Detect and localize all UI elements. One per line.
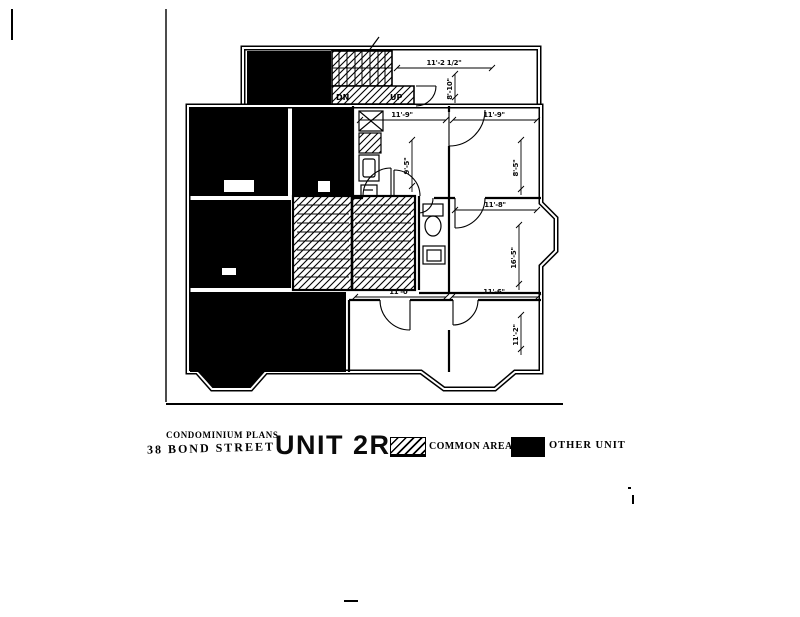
other-unit-swatch (511, 437, 545, 457)
dimension-label: 11'-6" (483, 288, 505, 296)
scanned-plan-page: DN UP (0, 0, 800, 617)
scan-mark (11, 9, 13, 40)
dimension-label: 11'-2" (512, 324, 520, 346)
floor-plan-drawing: DN UP (0, 0, 800, 617)
dimension-label: 11'-8" (484, 201, 506, 209)
unit-title: UNIT 2R (275, 430, 391, 461)
stair-down-label: DN (336, 93, 349, 102)
scan-mark (628, 487, 631, 489)
dimension-label: 8'-10" (446, 78, 454, 100)
common-area-stairwell (293, 196, 415, 290)
dimension-label: 8'-5" (512, 160, 520, 177)
scan-mark (632, 495, 634, 504)
dimension-label: 11'-2 1/2" (426, 59, 461, 67)
stair-up-label: UP (390, 93, 402, 102)
common-areas-swatch (390, 437, 426, 457)
dimension-label: 11'-9" (483, 111, 505, 119)
scan-mark (344, 600, 358, 602)
dimension-label: 11'-0" (389, 288, 411, 296)
dimension-label: 9'-5" (403, 158, 411, 175)
legend-other-label: OTHER UNIT (549, 440, 626, 451)
legend-common-label: COMMON AREAS (429, 441, 519, 452)
plan-series-title: CONDOMINIUM PLANS (166, 430, 278, 440)
dimension-label: 11'-9" (391, 111, 413, 119)
dimension-label: 16'-5" (510, 247, 518, 269)
